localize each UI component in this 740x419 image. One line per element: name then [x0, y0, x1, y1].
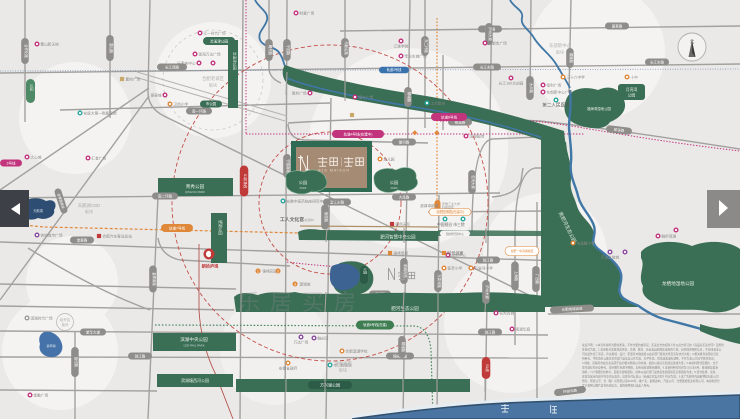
svg-text:月亮湾: 月亮湾 [626, 87, 638, 92]
svg-text:安徽中医药临床研究中心(在建中): 安徽中医药临床研究中心(在建中) [286, 198, 340, 203]
svg-text:乐居买房: 乐居买房 [238, 290, 366, 315]
svg-text:江淮学院: 江淮学院 [394, 43, 409, 48]
svg-text:合肥汽车客运总站: 合肥汽车客运总站 [102, 233, 132, 238]
svg-text:望湖城: 望湖城 [299, 281, 310, 286]
svg-text:S1线: S1线 [485, 364, 490, 372]
svg-text:锦绣智慧中心: 锦绣智慧中心 [446, 231, 464, 236]
svg-text:浍溪津公园: 浍溪津公园 [233, 52, 238, 70]
svg-text:桐城路: 桐城路 [401, 342, 406, 353]
svg-text:安医大第一附属医院: 安医大第一附属医院 [83, 110, 116, 115]
svg-text:资料；7.户型图仅供参考，面积为建筑面积，具体以政府部门最终: 资料；7.户型图仅供参考，面积为建筑面积，具体以政府部门最终核准的面积及实测面积… [582, 370, 718, 374]
svg-text:卫岗小学: 卫岗小学 [173, 101, 188, 106]
svg-text:观澜华庭: 观澜华庭 [515, 326, 530, 331]
svg-text:轨道4号线(在建中): 轨道4号线(在建中) [344, 131, 373, 136]
svg-text:滨湖中央公园: 滨湖中央公园 [180, 336, 208, 343]
svg-text:N1S MAISON: N1S MAISON [318, 168, 350, 172]
svg-text:中国视谷 市三院: 中国视谷 市三院 [437, 222, 465, 227]
svg-text:宁国南路: 宁国南路 [286, 159, 291, 173]
svg-text:S1机场线: S1机场线 [243, 174, 248, 189]
svg-text:轨道6号线(在建): 轨道6号线(在建) [363, 322, 387, 327]
svg-text:天鹅湖CBD: 天鹅湖CBD [78, 202, 100, 209]
svg-text:长江东路: 长江东路 [650, 59, 664, 64]
svg-text:板块: 板块 [556, 49, 564, 55]
svg-text:东部新中心: 东部新中心 [549, 42, 572, 49]
svg-text:庐州大道: 庐州大道 [488, 27, 493, 41]
svg-text:科教园区: 科教园区 [442, 205, 454, 210]
svg-text:珠江路: 珠江路 [485, 329, 496, 334]
svg-text:长江180文创园: 长江180文创园 [499, 80, 524, 85]
svg-text:银泰城: 银泰城 [151, 92, 162, 97]
svg-text:PARK: PARK [391, 186, 398, 190]
svg-text:万达文旅城: 万达文旅城 [601, 254, 620, 259]
svg-text:免责声明：1.本宣传资料为要约邀请，不作为要约或承诺，买卖双: 免责声明：1.本宣传资料为要约邀请，不作为要约或承诺，买卖双方的权利义务以双方签… [582, 343, 724, 347]
svg-text:金寨南路: 金寨南路 [152, 272, 157, 286]
svg-text:滨湖塘西河公园: 滨湖塘西河公园 [181, 377, 209, 383]
svg-text:胜利广场: 胜利广场 [292, 90, 307, 95]
svg-text:(在建中): (在建中) [304, 218, 314, 222]
svg-text:市公园: 市公园 [206, 101, 217, 106]
svg-text:幼儿园: 幼儿园 [383, 156, 394, 161]
svg-text:板块: 板块 [339, 367, 347, 373]
svg-text:大连路: 大连路 [399, 194, 410, 199]
svg-text:青秀公园: 青秀公园 [186, 183, 205, 190]
svg-text:锦绣花园: 锦绣花园 [262, 268, 277, 273]
svg-text:珠江路: 珠江路 [483, 257, 494, 262]
svg-text:福海湾湿地公园: 福海湾湿地公园 [587, 106, 611, 111]
svg-text:工人文化宫: 工人文化宫 [280, 216, 304, 223]
svg-text:肥河智慧中央公园: 肥河智慧中央公园 [380, 234, 416, 241]
svg-text:滨湖医院: 滨湖医院 [469, 133, 484, 138]
svg-text:融侨观澜: 融侨观澜 [661, 233, 676, 238]
svg-text:恒丰广场: 恒丰广场 [358, 94, 373, 99]
svg-text:方兴湖公园: 方兴湖公园 [320, 381, 340, 387]
svg-text:金融广场: 金融广场 [33, 392, 48, 397]
svg-text:万泉河路: 万泉河路 [437, 274, 442, 288]
svg-text:滨湖卓越城: 滨湖卓越城 [420, 203, 439, 208]
svg-text:天鹅湖: 天鹅湖 [33, 208, 43, 213]
svg-text:广西路: 广西路 [535, 274, 540, 285]
svg-text:信地城市广场: 信地城市广场 [40, 232, 62, 237]
svg-text:合肥滨湖学校: 合肥滨湖学校 [345, 348, 367, 353]
svg-text:马鞍山路: 马鞍山路 [344, 41, 349, 55]
svg-text:宿松路: 宿松路 [324, 212, 329, 223]
svg-text:瑶海万达广场: 瑶海万达广场 [198, 51, 220, 56]
svg-text:曙光路: 曙光路 [268, 45, 273, 56]
svg-text:徽河路: 徽河路 [399, 139, 410, 144]
svg-text:文字说明与图片意在传递信息，最终解释权归出卖人所有。: 文字说明与图片意在传递信息，最终解释权归出卖人所有。 [582, 384, 652, 388]
svg-text:4.地铁、道路等市政信息来源于政府相关网站公示内容，最终以政: 4.地铁、道路等市政信息来源于政府相关网站公示内容，最终以政府实际建设落成为准；… [582, 361, 718, 365]
svg-text:肥河生态公园: 肥河生态公园 [391, 305, 419, 312]
svg-text:潜山路: 潜山路 [109, 43, 114, 54]
svg-text:十中: 十中 [630, 74, 638, 79]
svg-text:家电等展示内容不在交付标准内，具体交付标准以《商品房买卖合同: 家电等展示内容不在交付标准内，具体交付标准以《商品房买卖合同》约定为准；9.本广… [582, 375, 719, 379]
svg-text:板块: 板块 [85, 208, 93, 214]
svg-text:繁华大道: 繁华大道 [86, 329, 100, 334]
svg-text:所有。预售证号：合（蜀）房预售证第2108号。推广名：朗拾森: 所有。预售证号：合（蜀）房预售证第2108号。推广名：朗拾森屿。开发公司：合肥朗… [582, 379, 720, 383]
svg-text:锦绣宝邸: 锦绣宝邸 [393, 250, 408, 255]
svg-text:司对此作出了承诺，有关规划、设计、配套等内容最终以政府部门批: 司对此作出了承诺，有关规划、设计、配套等内容最终以政府部门批准文件及实际交付为准… [582, 352, 719, 356]
svg-text:轨道8号线: 轨道8号线 [441, 114, 457, 119]
svg-text:蔚然天际: 蔚然天际 [395, 221, 410, 226]
svg-text:轨道2号线: 轨道2号线 [387, 67, 402, 72]
svg-text:合肥老城区: 合肥老城区 [202, 75, 225, 82]
svg-text:安徽省政府: 安徽省政府 [279, 365, 298, 370]
svg-text:翡翠湖: 翡翠湖 [46, 343, 55, 348]
svg-text:合肥园博园(在建中): 合肥园博园(在建中) [436, 209, 464, 214]
svg-text:包河大道: 包河大道 [471, 175, 476, 189]
svg-text:名邦西城: 名邦西城 [499, 310, 514, 315]
svg-text:万泉河小学: 万泉河小学 [474, 265, 493, 270]
svg-text:浍溪津公园: 浍溪津公园 [210, 38, 228, 43]
svg-text:新都会广场: 新都会广场 [488, 40, 507, 45]
svg-text:CENTRAL PARK: CENTRAL PARK [183, 344, 204, 348]
svg-text:公园: 公园 [30, 84, 35, 91]
svg-text:等内容仅作示意参考，部分图片来源于网络，如有侵权请联系删除；: 等内容仅作示意参考，部分图片来源于网络，如有侵权请联系删除；6.本资料制作时间为… [582, 366, 718, 370]
svg-text:供参考，学区划分以教育主管部门当年度公布为准，办学性质、招生: 供参考，学区划分以教育主管部门当年度公布为准，办学性质、招生政策或有调整，不作为… [582, 357, 716, 361]
svg-text:上海路: 上海路 [514, 271, 519, 282]
svg-text:滨湖时代广场: 滨湖时代广场 [30, 315, 52, 320]
svg-text:3号线: 3号线 [7, 160, 16, 165]
svg-text:等协议为准；2.本资料对项目周边环境、交通、教育、商业及其他: 等协议为准；2.本资料对项目周边环境、交通、教育、商业及其他配套设施的介绍，旨在… [582, 348, 722, 352]
svg-text:龙栖地湿地公园: 龙栖地湿地公园 [662, 280, 695, 287]
svg-text:轨道7号线: 轨道7号线 [169, 225, 185, 230]
svg-text:经开区: 经开区 [60, 317, 71, 322]
svg-text:东二环路: 东二环路 [424, 39, 429, 53]
svg-text:恒利广场: 恒利广场 [546, 82, 561, 87]
svg-text:万达广场: 万达广场 [294, 339, 309, 344]
svg-text:2: 2 [277, 269, 279, 273]
svg-text:QINGXIU PARK: QINGXIU PARK [185, 190, 205, 194]
svg-text:长江东路: 长江东路 [480, 64, 494, 69]
svg-text:蓬莱路: 蓬莱路 [612, 23, 623, 28]
svg-text:合肥一中滨湖校区: 合肥一中滨湖校区 [510, 248, 533, 253]
svg-text:宝业东城广场: 宝业东城广场 [404, 53, 426, 58]
svg-text:滨湖省府: 滨湖省府 [334, 360, 352, 367]
svg-text:元一时代广场: 元一时代广场 [203, 30, 225, 35]
svg-text:财富广场: 财富广场 [299, 10, 314, 15]
svg-text:乐客来中心: 乐客来中心 [177, 60, 196, 65]
svg-text:南一环路: 南一环路 [192, 108, 206, 113]
svg-text:铜陵路: 铜陵路 [569, 53, 574, 64]
svg-text:珠江路: 珠江路 [135, 353, 146, 358]
svg-text:置地广场: 置地广场 [125, 76, 140, 81]
svg-text:融创茂: 融创茂 [317, 335, 328, 340]
svg-text:三十六中学: 三十六中学 [566, 74, 585, 79]
svg-text:宁国路: 宁国路 [286, 45, 291, 56]
svg-text:东部新中心广场: 东部新中心广场 [546, 89, 572, 94]
svg-text:3: 3 [294, 282, 296, 286]
svg-text:荟萃小学: 荟萃小学 [447, 265, 462, 270]
svg-text:第二人民医院: 第二人民医院 [542, 101, 570, 108]
svg-text:之心城: 之心城 [30, 154, 41, 159]
svg-text:屯溪路小学: 屯溪路小学 [576, 240, 595, 245]
svg-text:板块: 板块 [209, 82, 217, 88]
svg-text:金寨路: 金寨路 [77, 237, 88, 242]
svg-text:始信路: 始信路 [74, 357, 79, 368]
svg-text:公园: 公园 [628, 93, 636, 98]
svg-text:桐城路: 桐城路 [407, 92, 412, 103]
svg-text:望湖公园: 望湖公园 [218, 220, 223, 235]
svg-text:时代领寓: 时代领寓 [447, 249, 463, 255]
svg-text:南二环路: 南二环路 [158, 193, 172, 198]
svg-text:PARK: PARK [300, 186, 307, 190]
svg-text:工大智谷: 工大智谷 [430, 100, 445, 105]
svg-text:合作化路: 合作化路 [24, 44, 29, 58]
svg-text:公园: 公园 [363, 268, 368, 274]
svg-text:庐州大道: 庐州大道 [485, 285, 490, 299]
svg-text:大众路: 大众路 [529, 83, 534, 94]
svg-text:1: 1 [257, 269, 259, 273]
svg-text:汇金广场: 汇金广场 [91, 155, 106, 160]
svg-text:蜀山新天地: 蜀山新天地 [40, 41, 59, 46]
svg-text:朗拾庐境: 朗拾庐境 [202, 263, 220, 270]
svg-text:板块: 板块 [62, 322, 69, 327]
